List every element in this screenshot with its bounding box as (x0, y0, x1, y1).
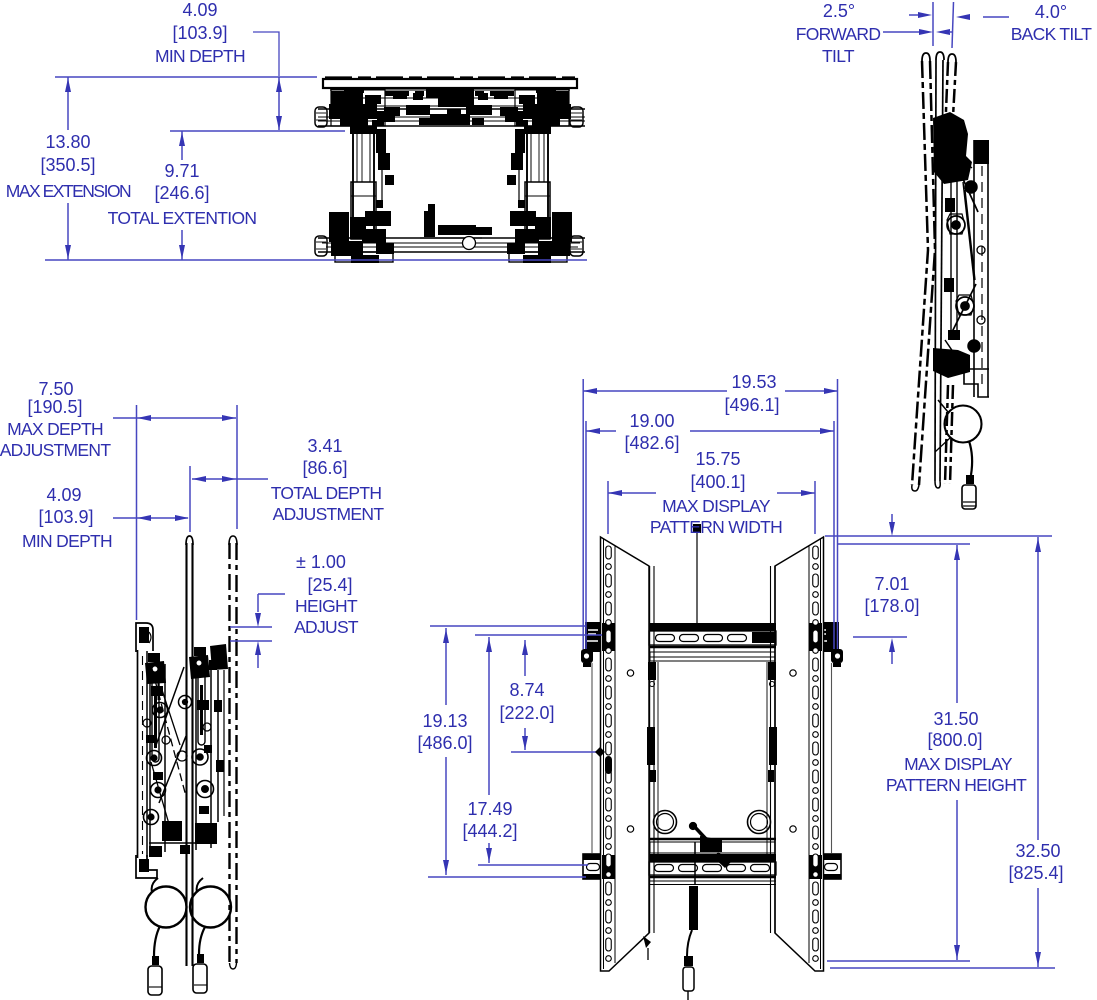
svg-text:[444.2]: [444.2] (462, 821, 517, 841)
svg-text:9.71: 9.71 (164, 161, 199, 181)
svg-text:[350.5]: [350.5] (40, 155, 95, 175)
svg-text:ADJUSTMENT: ADJUSTMENT (0, 440, 111, 460)
svg-text:[800.0]: [800.0] (927, 730, 982, 750)
svg-text:PATTERN WIDTH: PATTERN WIDTH (650, 517, 782, 537)
svg-text:2.5°: 2.5° (823, 1, 855, 21)
svg-text:[496.1]: [496.1] (724, 395, 779, 415)
svg-text:7.50: 7.50 (38, 379, 73, 399)
svg-text:[103.9]: [103.9] (38, 507, 93, 527)
svg-text:4.0°: 4.0° (1035, 2, 1067, 22)
svg-text:19.53: 19.53 (731, 372, 776, 392)
svg-text:32.50: 32.50 (1015, 841, 1060, 861)
svg-text:8.74: 8.74 (509, 680, 544, 700)
svg-text:PATTERN HEIGHT: PATTERN HEIGHT (886, 775, 1027, 795)
svg-text:4.09: 4.09 (46, 485, 81, 505)
svg-text:TOTAL DEPTH: TOTAL DEPTH (271, 483, 382, 503)
svg-text:TOTAL EXTENTION: TOTAL EXTENTION (108, 208, 257, 228)
svg-text:19.00: 19.00 (629, 411, 674, 431)
svg-text:7.01: 7.01 (874, 574, 909, 594)
svg-text:[482.6]: [482.6] (624, 433, 679, 453)
svg-text:MIN DEPTH: MIN DEPTH (155, 46, 245, 66)
svg-text:[222.0]: [222.0] (499, 703, 554, 723)
svg-text:13.80: 13.80 (45, 132, 90, 152)
svg-text:ADJUST: ADJUST (294, 617, 359, 637)
svg-text:15.75: 15.75 (695, 449, 740, 469)
svg-text:TILT: TILT (822, 46, 855, 66)
svg-text:[825.4]: [825.4] (1008, 863, 1063, 883)
svg-text:ADJUSTMENT: ADJUSTMENT (273, 504, 385, 524)
svg-text:[178.0]: [178.0] (864, 596, 919, 616)
svg-text:MAX DISPLAY: MAX DISPLAY (904, 754, 1013, 774)
svg-text:MAX DISPLAY: MAX DISPLAY (662, 496, 771, 516)
svg-text:MIN DEPTH: MIN DEPTH (22, 531, 112, 551)
svg-text:[25.4]: [25.4] (307, 575, 352, 595)
svg-text:MAX EXTENSION: MAX EXTENSION (6, 181, 131, 201)
svg-text:4.09: 4.09 (182, 0, 217, 20)
svg-text:31.50: 31.50 (933, 709, 978, 729)
svg-text:[400.1]: [400.1] (690, 472, 745, 492)
svg-text:[246.6]: [246.6] (154, 183, 209, 203)
svg-text:± 1.00: ± 1.00 (296, 552, 346, 572)
svg-text:[190.5]: [190.5] (27, 397, 82, 417)
svg-text:19.13: 19.13 (422, 711, 467, 731)
svg-text:17.49: 17.49 (467, 799, 512, 819)
svg-text:[86.6]: [86.6] (302, 458, 347, 478)
svg-text:HEIGHT: HEIGHT (295, 596, 358, 616)
svg-text:FORWARD: FORWARD (796, 24, 881, 44)
svg-text:MAX DEPTH: MAX DEPTH (7, 419, 103, 439)
svg-text:[103.9]: [103.9] (172, 23, 227, 43)
svg-text:BACK TILT: BACK TILT (1011, 24, 1093, 44)
svg-text:[486.0]: [486.0] (417, 733, 472, 753)
svg-text:3.41: 3.41 (307, 436, 342, 456)
